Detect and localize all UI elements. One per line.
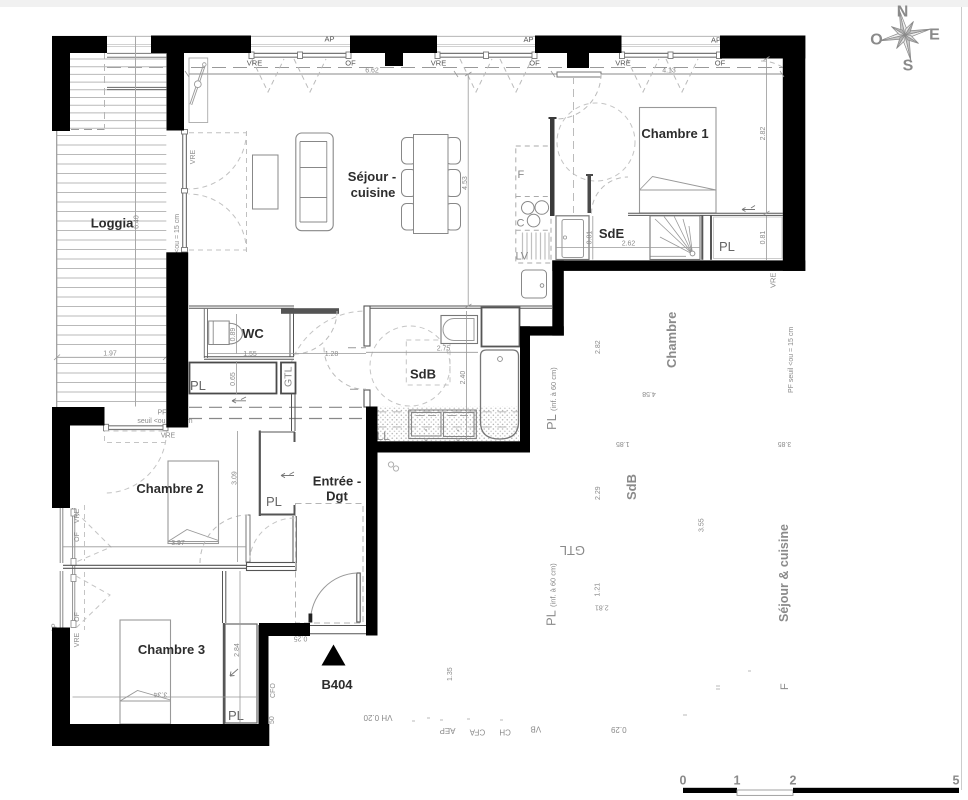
svg-text:4.13: 4.13 xyxy=(662,68,676,75)
svg-text:AP: AP xyxy=(523,35,533,44)
svg-text:VRE: VRE xyxy=(431,59,446,68)
svg-text:1.35: 1.35 xyxy=(447,667,454,681)
svg-text:3.85: 3.85 xyxy=(778,440,792,447)
svg-text:B404: B404 xyxy=(321,677,353,692)
svg-text:Dgt: Dgt xyxy=(326,489,348,504)
svg-text:PL: PL xyxy=(719,239,735,254)
svg-text:F: F xyxy=(518,169,525,181)
svg-text:1.28: 1.28 xyxy=(325,351,339,358)
svg-text:VRE: VRE xyxy=(190,149,197,164)
svg-text:5: 5 xyxy=(953,774,960,788)
svg-text:Chambre 1: Chambre 1 xyxy=(641,126,708,141)
svg-text:Séjour & cuisine: Séjour & cuisine xyxy=(777,524,791,622)
svg-text:1.97: 1.97 xyxy=(103,351,117,358)
svg-text:SdB: SdB xyxy=(410,367,436,382)
svg-text:F: F xyxy=(779,683,791,690)
svg-text:AP: AP xyxy=(711,36,721,45)
svg-text:WC: WC xyxy=(242,326,264,341)
svg-text:VRE: VRE xyxy=(74,632,81,647)
svg-text:GTL: GTL xyxy=(560,543,585,558)
svg-text:Loggia: Loggia xyxy=(91,216,134,231)
svg-text:LV: LV xyxy=(516,251,529,263)
svg-text:LL: LL xyxy=(377,429,391,443)
svg-text:2.84: 2.84 xyxy=(234,643,241,657)
svg-text:PL: PL xyxy=(228,708,244,723)
svg-text:AEP: AEP xyxy=(439,726,455,735)
svg-text:VRE: VRE xyxy=(247,59,262,68)
svg-text:2.82: 2.82 xyxy=(760,127,767,141)
svg-text:SdE: SdE xyxy=(599,226,625,241)
svg-text:6.40: 6.40 xyxy=(134,215,141,229)
svg-text:1: 1 xyxy=(734,774,741,788)
svg-text:PL: PL xyxy=(190,378,206,393)
svg-text:2.81: 2.81 xyxy=(595,604,609,611)
svg-text:CFA: CFA xyxy=(469,728,485,737)
svg-text:OF: OF xyxy=(74,612,81,622)
svg-text:Entrée -: Entrée - xyxy=(313,474,361,489)
svg-text:0: 0 xyxy=(680,774,687,788)
svg-text:PF seuil <ou = 15 cm: PF seuil <ou = 15 cm xyxy=(788,327,795,393)
svg-text:2.62: 2.62 xyxy=(622,241,636,248)
svg-text:0.29: 0.29 xyxy=(610,725,626,734)
svg-text:3.55: 3.55 xyxy=(699,518,706,532)
svg-text:Chambre 3: Chambre 3 xyxy=(138,642,205,657)
svg-text:OF: OF xyxy=(529,59,540,68)
svg-text:3.97: 3.97 xyxy=(171,540,185,547)
svg-text:3.09: 3.09 xyxy=(231,471,238,485)
svg-text:3.34: 3.34 xyxy=(154,690,168,697)
svg-text:AP: AP xyxy=(324,35,334,44)
svg-text:N: N xyxy=(897,4,909,21)
svg-text:VB: VB xyxy=(530,725,541,734)
svg-text:OF: OF xyxy=(345,59,356,68)
svg-text:GTL: GTL xyxy=(283,366,295,387)
svg-text:VH 0.20: VH 0.20 xyxy=(363,713,392,722)
svg-text:PF: PF xyxy=(158,410,167,417)
svg-text:CFO: CFO xyxy=(270,683,277,698)
svg-text:4.53: 4.53 xyxy=(462,176,469,190)
svg-text:E: E xyxy=(929,27,940,44)
svg-text:cuisine: cuisine xyxy=(351,185,396,200)
svg-text:VRE: VRE xyxy=(74,508,81,523)
svg-text:OF: OF xyxy=(715,59,726,68)
svg-text:0.81: 0.81 xyxy=(587,231,594,245)
svg-text:2.82: 2.82 xyxy=(595,340,602,354)
svg-text:2: 2 xyxy=(790,774,797,788)
svg-text:VRE: VRE xyxy=(161,433,176,440)
svg-text:0.81: 0.81 xyxy=(760,231,767,245)
svg-text:6.62: 6.62 xyxy=(365,68,379,75)
svg-text:1.85: 1.85 xyxy=(616,440,630,447)
svg-text:2.40: 2.40 xyxy=(460,371,467,385)
svg-text:SdB: SdB xyxy=(624,474,639,500)
svg-text:S: S xyxy=(903,58,914,75)
svg-text:OF: OF xyxy=(74,532,81,542)
svg-text:VRE: VRE xyxy=(769,273,778,288)
svg-text:PL: PL xyxy=(266,494,282,509)
svg-text:2.29: 2.29 xyxy=(595,486,602,500)
svg-text:0.65: 0.65 xyxy=(230,372,237,386)
svg-text:1.21: 1.21 xyxy=(595,583,602,597)
svg-text:0.89: 0.89 xyxy=(230,328,237,342)
svg-text:Chambre 2: Chambre 2 xyxy=(136,481,203,496)
svg-text:Chambre: Chambre xyxy=(664,312,679,368)
svg-text:CH: CH xyxy=(499,728,511,737)
svg-text:1.55: 1.55 xyxy=(243,351,257,358)
svg-text:C: C xyxy=(517,218,525,230)
svg-text:4.58: 4.58 xyxy=(642,390,656,397)
svg-text:50: 50 xyxy=(269,716,276,724)
svg-text:VRE: VRE xyxy=(615,59,630,68)
svg-text:O: O xyxy=(870,32,882,49)
svg-text:2.75: 2.75 xyxy=(437,345,451,352)
svg-text:Séjour -: Séjour - xyxy=(348,169,396,184)
